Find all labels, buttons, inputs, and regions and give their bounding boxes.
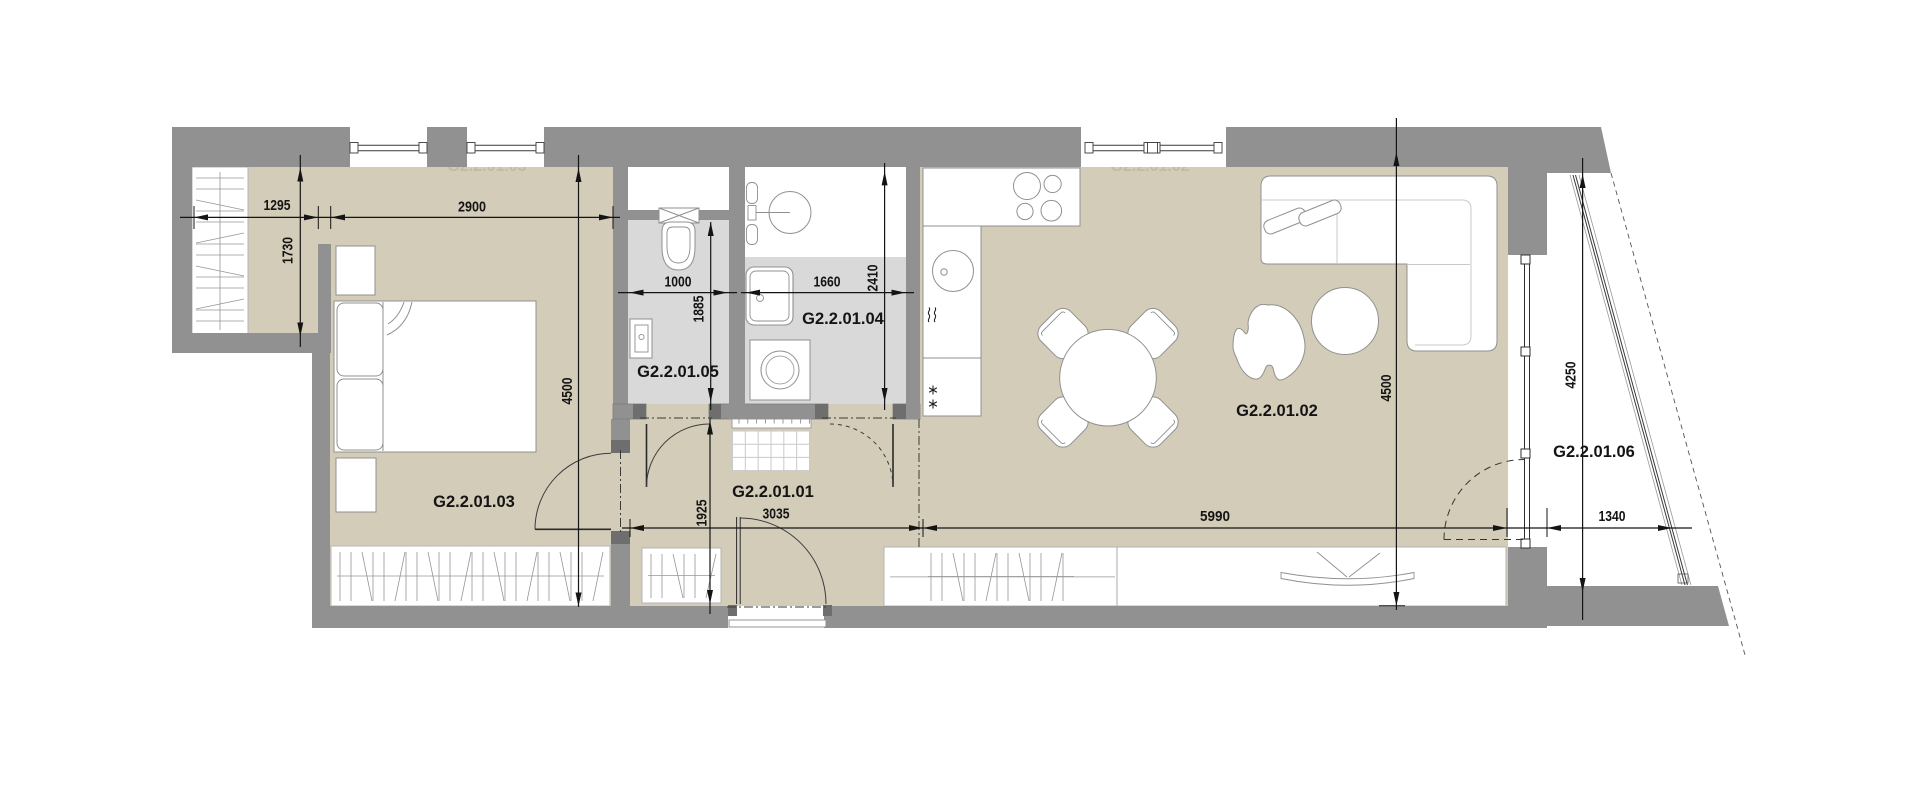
- svg-text:1660: 1660: [814, 273, 841, 290]
- svg-text:2900: 2900: [458, 198, 486, 215]
- svg-text:G2.2.01.04: G2.2.01.04: [802, 310, 884, 328]
- svg-text:G2.2.01.01: G2.2.01.01: [732, 483, 814, 501]
- svg-text:2410: 2410: [864, 265, 881, 292]
- svg-text:5990: 5990: [1200, 508, 1230, 525]
- svg-text:4500: 4500: [559, 378, 576, 405]
- svg-text:1295: 1295: [264, 197, 291, 214]
- svg-text:G2.2.01.06: G2.2.01.06: [1553, 443, 1635, 461]
- svg-text:1885: 1885: [690, 296, 707, 323]
- svg-text:G2.2.01.05: G2.2.01.05: [637, 363, 719, 381]
- svg-text:4500: 4500: [1378, 375, 1395, 402]
- svg-text:1000: 1000: [665, 273, 692, 290]
- svg-text:G2.2.01.02: G2.2.01.02: [1236, 402, 1318, 420]
- svg-text:1340: 1340: [1599, 508, 1626, 525]
- svg-text:3035: 3035: [763, 505, 790, 522]
- svg-text:G2.2.01.03: G2.2.01.03: [433, 493, 515, 511]
- svg-text:1925: 1925: [693, 500, 710, 527]
- svg-text:1730: 1730: [279, 237, 296, 264]
- svg-text:4250: 4250: [1562, 362, 1579, 389]
